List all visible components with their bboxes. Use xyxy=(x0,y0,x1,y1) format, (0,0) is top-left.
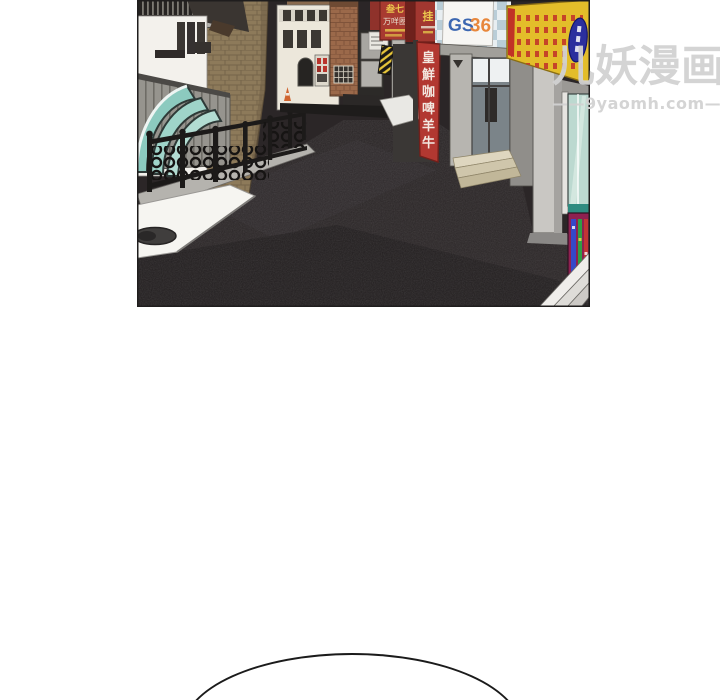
ac-bracket xyxy=(155,50,185,58)
utility-box-dark xyxy=(195,42,211,53)
teal-sill xyxy=(568,204,590,213)
door-figure-shadow xyxy=(485,88,497,122)
poster-vending-machine xyxy=(315,55,329,86)
gs36-sign: GS 36 xyxy=(442,0,493,46)
red-sign-edge xyxy=(370,0,381,30)
banner-char-2: 鮮 xyxy=(422,67,435,82)
banner-char-4: 啤 xyxy=(422,101,435,116)
gs36-number: 36 xyxy=(470,15,492,37)
red-sign-left-line1: 叁七 xyxy=(385,3,404,14)
webtoon-page: 叁七 万咩圈 挂 GS 36 xyxy=(0,0,720,700)
red-sign-mid-char: 挂 xyxy=(423,9,434,23)
vertical-red-banner: 皇 鮮 咖 啤 羊 牛 xyxy=(413,40,440,162)
speech-bubble xyxy=(182,653,522,700)
banner-char-3: 咖 xyxy=(422,84,435,99)
banner-char-6: 牛 xyxy=(422,135,435,150)
alley-scene: 叁七 万咩圈 挂 GS 36 xyxy=(137,0,590,307)
banner-char-5: 羊 xyxy=(422,118,435,133)
red-sign-left-line2: 万咩圈 xyxy=(383,16,407,26)
lattice-window xyxy=(334,66,353,83)
mint-glass-window xyxy=(568,94,590,206)
arched-doorway xyxy=(298,58,313,86)
banner-char-1: 皇 xyxy=(422,50,435,65)
storefront-glass-door xyxy=(440,44,535,188)
comic-panel-alley: 叁七 万咩圈 挂 GS 36 xyxy=(137,0,590,307)
